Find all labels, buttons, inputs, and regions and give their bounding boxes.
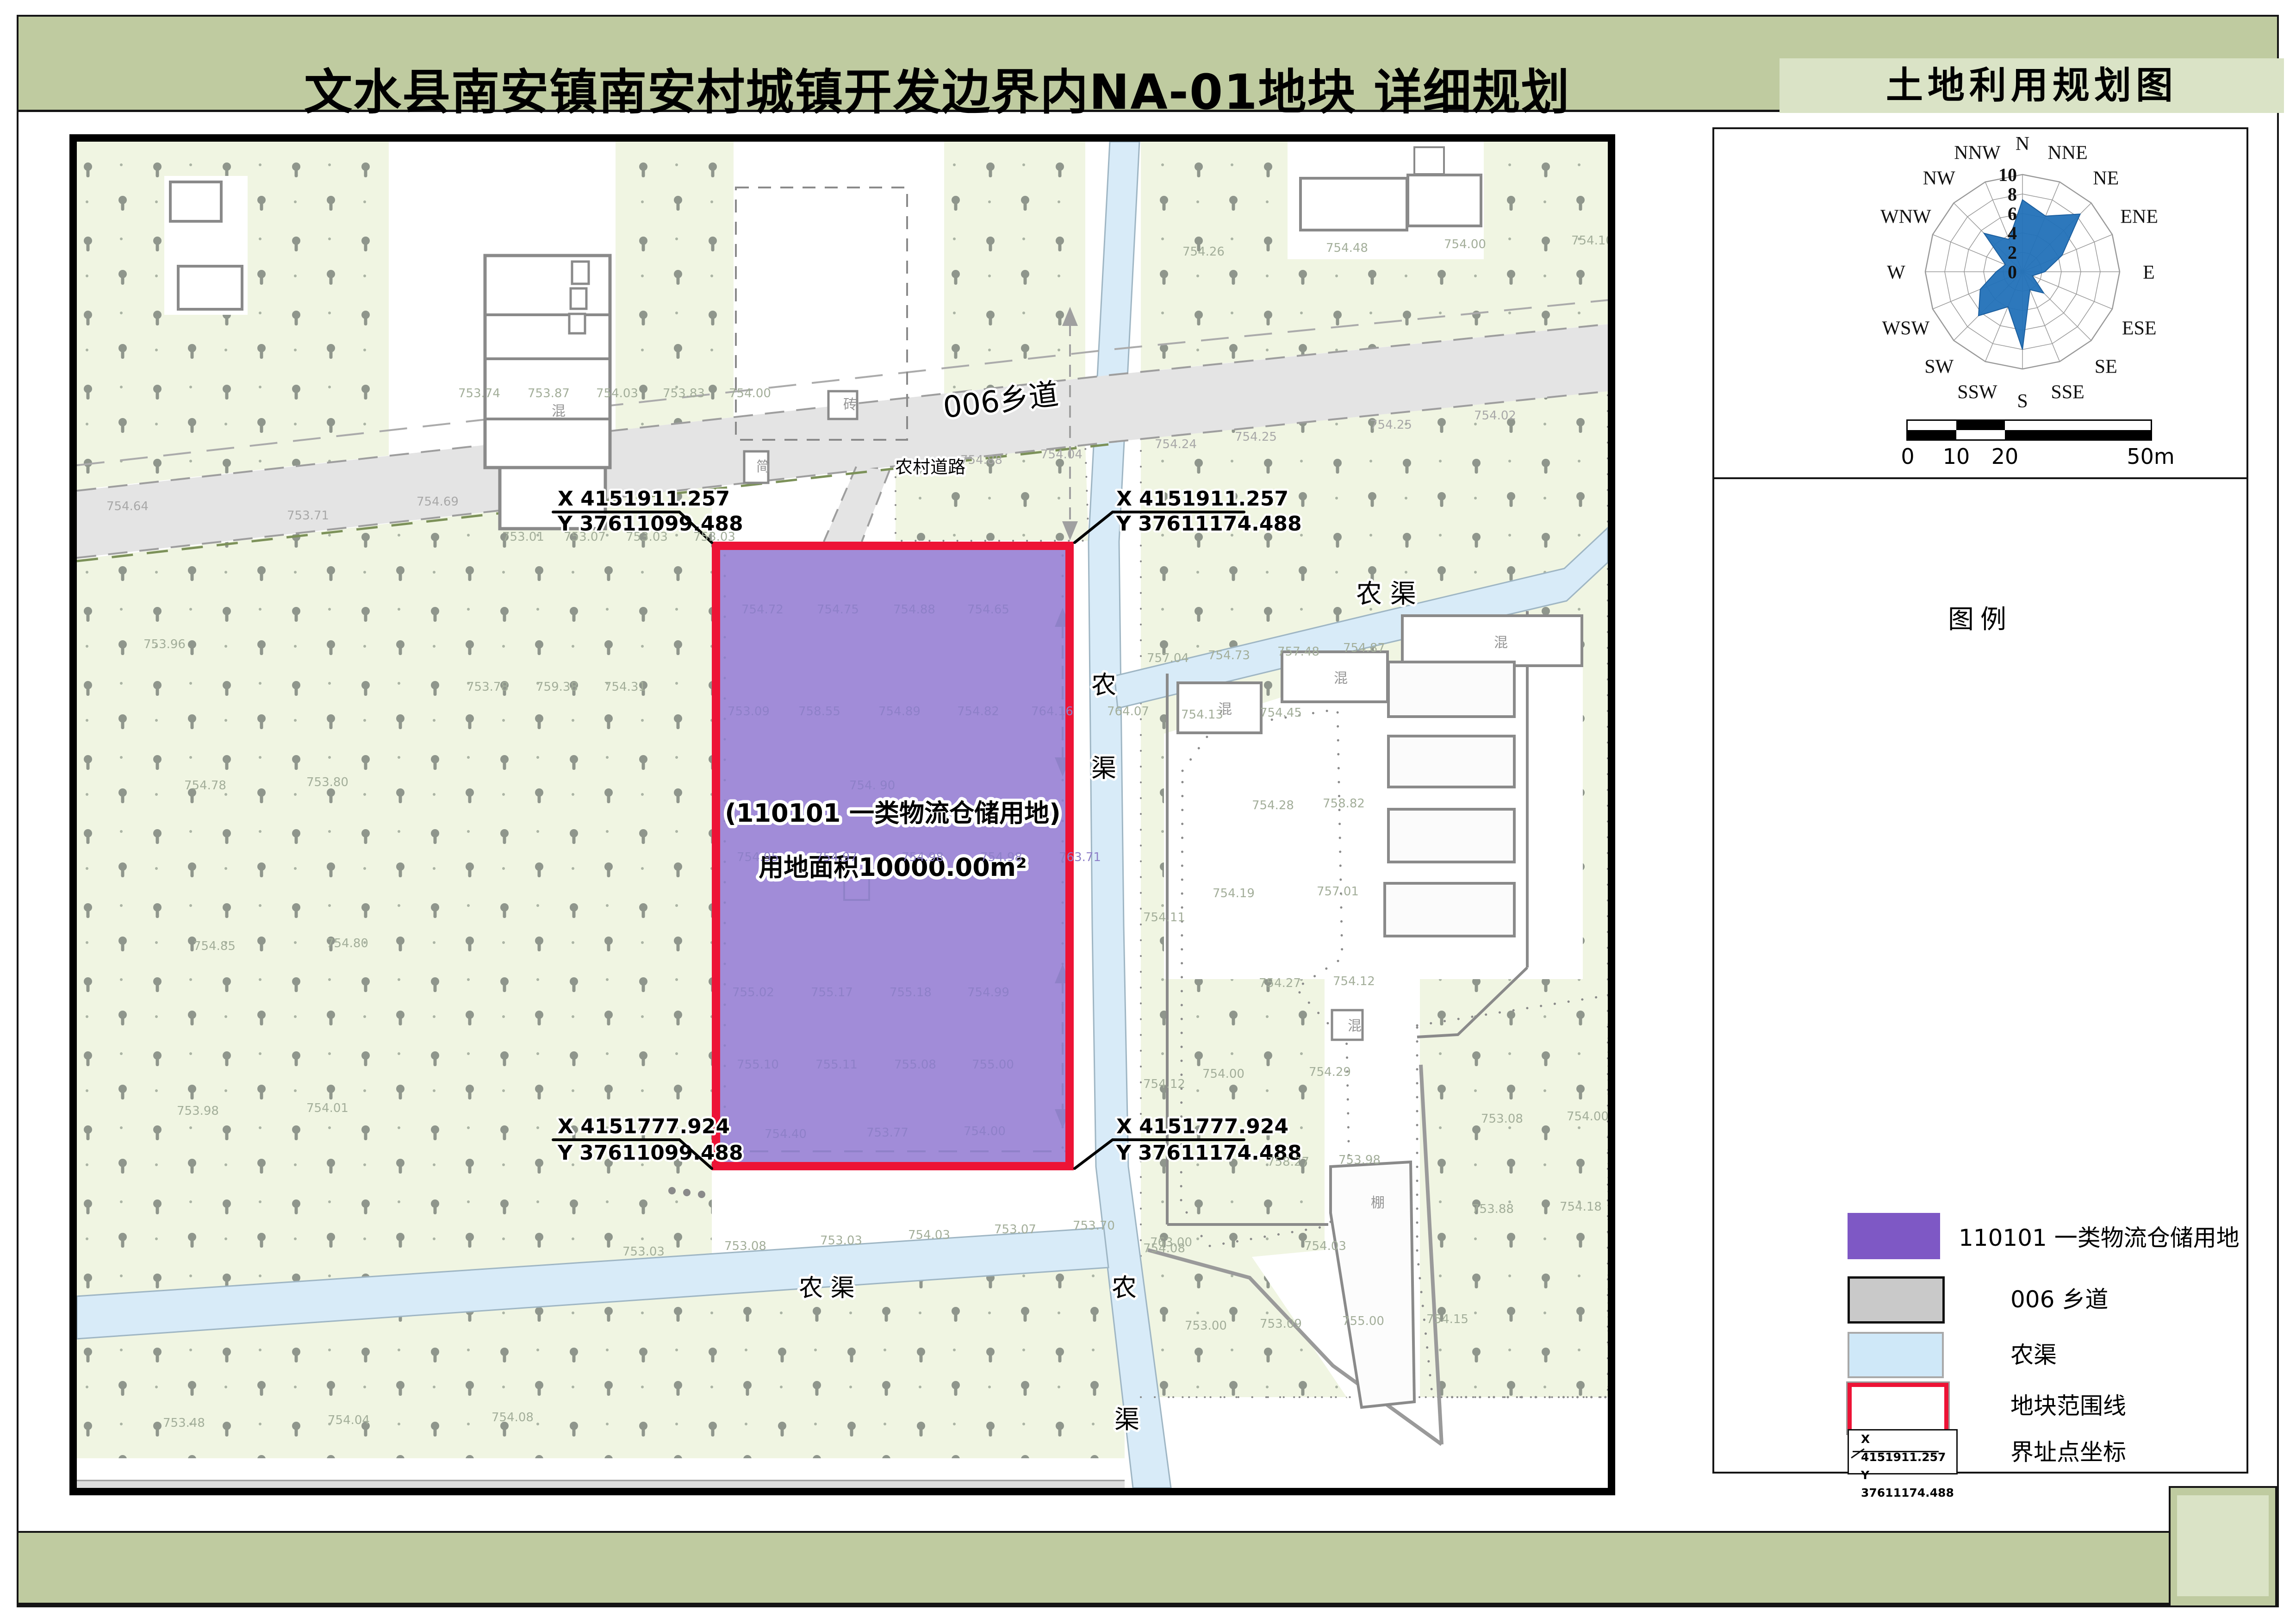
building-label: 棚 xyxy=(1371,1195,1385,1211)
spot-elevation: 754.40 xyxy=(765,1127,807,1141)
spot-elevation: 755.00 xyxy=(972,1058,1014,1072)
windrose-direction-label: NNE xyxy=(2047,142,2087,163)
spot-elevation: 754.25 xyxy=(1370,418,1412,432)
spot-elevation: 754.00 xyxy=(1444,237,1486,251)
spot-elevation: 754.95 xyxy=(737,850,779,864)
svg-text:X 4151911.257: X 4151911.257 xyxy=(1116,487,1288,511)
spot-elevation: 753.88 xyxy=(1472,1202,1514,1216)
scale-50m: 50m xyxy=(2127,444,2174,469)
spot-elevation: 754.45 xyxy=(1260,706,1302,720)
spot-elevation: 754.08 xyxy=(492,1411,534,1424)
road-rural-label: 农村道路 xyxy=(895,457,965,477)
spot-elevation: 754.64 xyxy=(106,500,149,513)
legend-label-boundary: 地块范围线 xyxy=(2010,1387,2126,1421)
spot-elevation: 755.10 xyxy=(737,1058,779,1072)
windrose-direction-label: NNW xyxy=(1954,142,2001,163)
spot-elevation: 754.87 xyxy=(1343,641,1385,655)
spot-elevation: 753.07 xyxy=(994,1223,1036,1237)
spot-elevation: 754.98 xyxy=(902,850,944,864)
spot-elevation: 757.48 xyxy=(1277,645,1319,659)
windrose-tick-label: 4 xyxy=(2008,223,2017,244)
svg-text:X 4151911.257: X 4151911.257 xyxy=(558,487,730,511)
windrose-tick-label: 2 xyxy=(2008,242,2017,263)
building-label: 混 xyxy=(552,403,566,419)
windrose-direction-label: N xyxy=(2016,133,2029,155)
legend-swatch-boundary xyxy=(1848,1383,1948,1434)
spot-elevation: 754.01 xyxy=(306,1101,348,1115)
windrose-direction-label: WSW xyxy=(1882,318,1929,339)
spot-elevation: 754.75 xyxy=(817,603,859,617)
spot-elevation: 753.74 xyxy=(458,387,500,400)
windrose-direction-label: W xyxy=(1887,262,1905,283)
spot-elevation: 754.00 xyxy=(1567,1110,1609,1124)
legend-item-road: 006 乡道 xyxy=(1714,1276,2250,1319)
scale-0: 0 xyxy=(1901,444,1914,469)
spot-elevation: 754.31 xyxy=(604,680,646,694)
legend-label-coords: 界址点坐标 xyxy=(2010,1434,2126,1467)
spot-elevation: 754.12 xyxy=(1143,1077,1185,1091)
spot-elevation: 754.89 xyxy=(878,705,921,718)
legend-swatch-coords: X 4151911.257 Y 37611174.488 xyxy=(1848,1429,1958,1474)
spot-elevation: 753.08 xyxy=(1481,1112,1523,1126)
windrose-direction-label: SSE xyxy=(2051,382,2084,403)
plan-sheet: 文水县南安镇南安村城镇开发边界内NA-01地块 详细规划 土地利用规划图 xyxy=(0,0,2296,1624)
spot-elevation: 754.80 xyxy=(326,937,368,950)
spot-elevation: 754. 90 xyxy=(849,779,895,793)
svg-text:Y 37611174.488: Y 37611174.488 xyxy=(1116,512,1302,536)
bottom-right-inner-panel xyxy=(2177,1495,2269,1596)
spot-elevation: 754.27 xyxy=(1259,976,1301,990)
spot-elevation: 754.13 xyxy=(1181,708,1223,722)
windrose-direction-label: WNW xyxy=(1880,206,1931,227)
spot-elevation: 754.65 xyxy=(967,603,1009,617)
spot-elevation: 754.99 xyxy=(967,986,1009,999)
spot-elevation: 753.78 xyxy=(467,680,509,694)
channel-ne-label: 农 渠 xyxy=(1356,579,1416,609)
windrose-direction-label: SW xyxy=(1924,356,1954,377)
spot-elevation: 763.71 xyxy=(1059,850,1101,864)
windrose-direction-label: NE xyxy=(2093,168,2119,189)
legend-swatch-road xyxy=(1848,1276,1945,1324)
spot-elevation: 754.19 xyxy=(1213,887,1255,900)
parcel-code-label: (110101 一类物流仓储用地) xyxy=(725,799,1061,828)
spot-elevation: 754.04 xyxy=(328,1413,370,1427)
spot-elevation: 754.85 xyxy=(193,939,236,953)
spot-elevation: 757.01 xyxy=(1317,885,1359,899)
channel-v1-char2: 渠 xyxy=(1091,754,1116,783)
spot-elevation: 753.01 xyxy=(502,530,544,544)
channel-bottom-label: 农 渠 xyxy=(799,1274,855,1302)
map-area: (110101 一类物流仓储用地) 用地面积10000.00m² X 41519… xyxy=(69,134,1615,1495)
spot-elevation: 754.82 xyxy=(957,705,999,718)
spot-elevation: 754.98 xyxy=(980,850,1022,864)
spot-elevation: 757.04 xyxy=(1147,651,1189,665)
windrose-panel: NNNENEENEEESESESSESSSWSWWSWWWNWNWNNW0246… xyxy=(1712,127,2248,479)
legend-swatch-warehouse xyxy=(1848,1213,1940,1259)
map-svg: (110101 一类物流仓储用地) 用地面积10000.00m² X 41519… xyxy=(69,134,1615,1495)
spot-elevation: 753.96 xyxy=(143,637,186,651)
legend-label-channel: 农渠 xyxy=(2010,1337,2057,1370)
svg-text:X 4151777.924: X 4151777.924 xyxy=(558,1115,730,1138)
spot-elevation: 754.26 xyxy=(1182,245,1225,259)
scale-10: 10 xyxy=(1943,444,1970,469)
spot-elevation: 755.00 xyxy=(1342,1314,1384,1328)
spot-elevation: 753.09 xyxy=(1260,1317,1302,1331)
legend-label-warehouse: 110101 一类物流仓储用地 xyxy=(1959,1219,2240,1253)
legend-swatch-channel xyxy=(1848,1332,1944,1378)
spot-elevation: 753.87 xyxy=(528,387,570,400)
channel-v2-char1: 农 xyxy=(1112,1273,1137,1302)
legend-item-coords: X 4151911.257 Y 37611174.488 界址点坐标 xyxy=(1714,1429,2250,1472)
spot-elevation: 755.08 xyxy=(894,1058,936,1072)
spot-elevation: 753.03 xyxy=(693,530,735,544)
spot-elevation: 754.00 xyxy=(1202,1067,1244,1081)
spot-elevation: 753.03 xyxy=(626,530,668,544)
svg-text:X 4151777.924: X 4151777.924 xyxy=(1116,1115,1288,1138)
spot-elevation: 754.72 xyxy=(741,603,784,617)
spot-elevation: 754.29 xyxy=(1309,1065,1351,1079)
windrose-tick-label: 8 xyxy=(2008,184,2017,205)
legend-title: 图例 xyxy=(1714,599,2246,636)
spot-elevation: 753.03 xyxy=(622,1245,665,1259)
spot-elevation: 754.88 xyxy=(960,453,1002,467)
legend-coord-y: Y 37611174.488 xyxy=(1861,1467,1956,1503)
spot-elevation: 753.80 xyxy=(306,775,348,789)
spot-elevation: 758.82 xyxy=(1323,797,1365,811)
scale-20: 20 xyxy=(1991,444,2019,469)
spot-elevation: 754.03 xyxy=(908,1228,950,1242)
bottom-band xyxy=(19,1531,2277,1605)
scale-bar xyxy=(1906,419,2152,441)
spot-elevation: 753.48 xyxy=(163,1416,205,1430)
page-title: 文水县南安镇南安村城镇开发边界内NA-01地块 详细规划 xyxy=(97,53,1777,123)
spot-elevation: 754.88 xyxy=(893,603,935,617)
windrose-direction-label: SE xyxy=(2095,356,2117,377)
spot-elevation: 753.03 xyxy=(820,1234,862,1248)
windrose-tick-label: 6 xyxy=(2008,203,2017,224)
spot-elevation: 763.00 xyxy=(1150,1236,1192,1249)
spot-elevation: 754.69 xyxy=(417,495,459,509)
legend-coord-x: X 4151911.257 xyxy=(1861,1430,1956,1467)
spot-elevation: 755.18 xyxy=(890,986,932,999)
legend-label-road: 006 乡道 xyxy=(2010,1281,2108,1314)
legend-item-boundary: 地块范围线 xyxy=(1714,1383,2250,1425)
spot-elevation: 754.11 xyxy=(1143,911,1185,924)
windrose-tick-label: 10 xyxy=(1998,164,2017,185)
scale-bar-labels: 0 10 20 50m xyxy=(1714,444,2250,472)
windrose-direction-label: ESE xyxy=(2122,318,2157,339)
windrose-direction-label: NW xyxy=(1923,168,1955,189)
legend-item-warehouse: 110101 一类物流仓储用地 xyxy=(1714,1213,2250,1259)
svg-text:Y 37611099.488: Y 37611099.488 xyxy=(557,1141,743,1165)
spot-elevation: 753.00 xyxy=(1185,1319,1227,1333)
spot-elevation: 754.00 xyxy=(729,387,771,400)
building-label: 混 xyxy=(1348,1018,1362,1034)
spot-elevation: 754.12 xyxy=(1333,974,1375,988)
spot-elevation: 754.10 xyxy=(1571,234,1613,248)
building-label: 混 xyxy=(1494,635,1508,651)
windrose-direction-label: SSW xyxy=(1957,382,1997,403)
building-label: 混 xyxy=(1218,701,1232,718)
spot-elevation: 753.71 xyxy=(287,509,329,523)
spot-elevation: 753.08 xyxy=(724,1239,766,1253)
bottom-road-strip xyxy=(77,1480,1125,1489)
spot-elevation: 754.03 xyxy=(1304,1239,1346,1253)
spot-elevation: 754.15 xyxy=(1426,1312,1468,1326)
spot-elevation: 754.25 xyxy=(1235,430,1277,444)
spot-elevation: 753.83 xyxy=(663,387,705,400)
spot-elevation: 754.00 xyxy=(964,1124,1006,1138)
spot-elevation: 754.97 xyxy=(815,850,858,864)
legend-panel: 图例 110101 一类物流仓储用地 006 乡道 农渠 地块范围线 X 415… xyxy=(1712,477,2248,1474)
spot-elevation: 758.27 xyxy=(1267,1155,1309,1169)
spot-elevation: 754.03 xyxy=(596,387,638,400)
spot-elevation: 753.98 xyxy=(1338,1153,1381,1167)
windrose-direction-label: S xyxy=(2017,391,2028,412)
bottom-right-block xyxy=(2169,1486,2277,1605)
spot-elevation: 755.02 xyxy=(732,986,774,999)
windrose-direction-label: ENE xyxy=(2120,206,2158,227)
map-type-label: 土地利用规划图 xyxy=(1780,58,2284,113)
map-type-panel: 土地利用规划图 xyxy=(1780,58,2284,113)
spot-elevation: 753.70 xyxy=(1073,1219,1115,1233)
legend-item-channel: 农渠 xyxy=(1714,1332,2250,1374)
spot-elevation: 753.98 xyxy=(177,1104,219,1118)
spot-elevation: 754.24 xyxy=(1155,437,1197,451)
windrose-tick-label: 0 xyxy=(2008,262,2017,282)
spot-elevation: 754.28 xyxy=(1252,799,1294,812)
spot-elevation: 754.02 xyxy=(1474,409,1516,423)
building-label: 砖 xyxy=(843,397,857,413)
building-label: 混 xyxy=(1334,670,1348,687)
spot-elevation: 754.73 xyxy=(1208,649,1250,662)
spot-elevation: 755.17 xyxy=(811,986,853,999)
channel-v2-char2: 渠 xyxy=(1114,1405,1139,1434)
title-band: 文水县南安镇南安村城镇开发边界内NA-01地块 详细规划 土地利用规划图 xyxy=(19,17,2277,112)
spot-elevation: 753.07 xyxy=(564,530,606,544)
spot-elevation: 754.78 xyxy=(184,779,226,793)
spot-elevation: 754.04 xyxy=(1040,448,1083,462)
channel-v1-char1: 农 xyxy=(1091,670,1116,700)
spot-elevation: 764.16 xyxy=(1031,705,1073,718)
spot-elevation: 754.18 xyxy=(1560,1200,1602,1214)
spot-elevation: 755.11 xyxy=(815,1058,858,1072)
spot-elevation: 758.55 xyxy=(798,705,840,718)
coord-bottom-left: X 4151777.924 Y 37611099.488 xyxy=(553,1115,743,1168)
spot-elevation: 759.38 xyxy=(536,680,578,694)
spot-elevation: 753.09 xyxy=(728,705,770,718)
spot-elevation: 764.07 xyxy=(1107,705,1149,718)
building-label: 简 xyxy=(756,459,770,475)
windrose-direction-label: E xyxy=(2143,262,2155,283)
spot-elevation: 754.48 xyxy=(1326,241,1368,255)
spot-elevation: 753.77 xyxy=(866,1126,908,1140)
